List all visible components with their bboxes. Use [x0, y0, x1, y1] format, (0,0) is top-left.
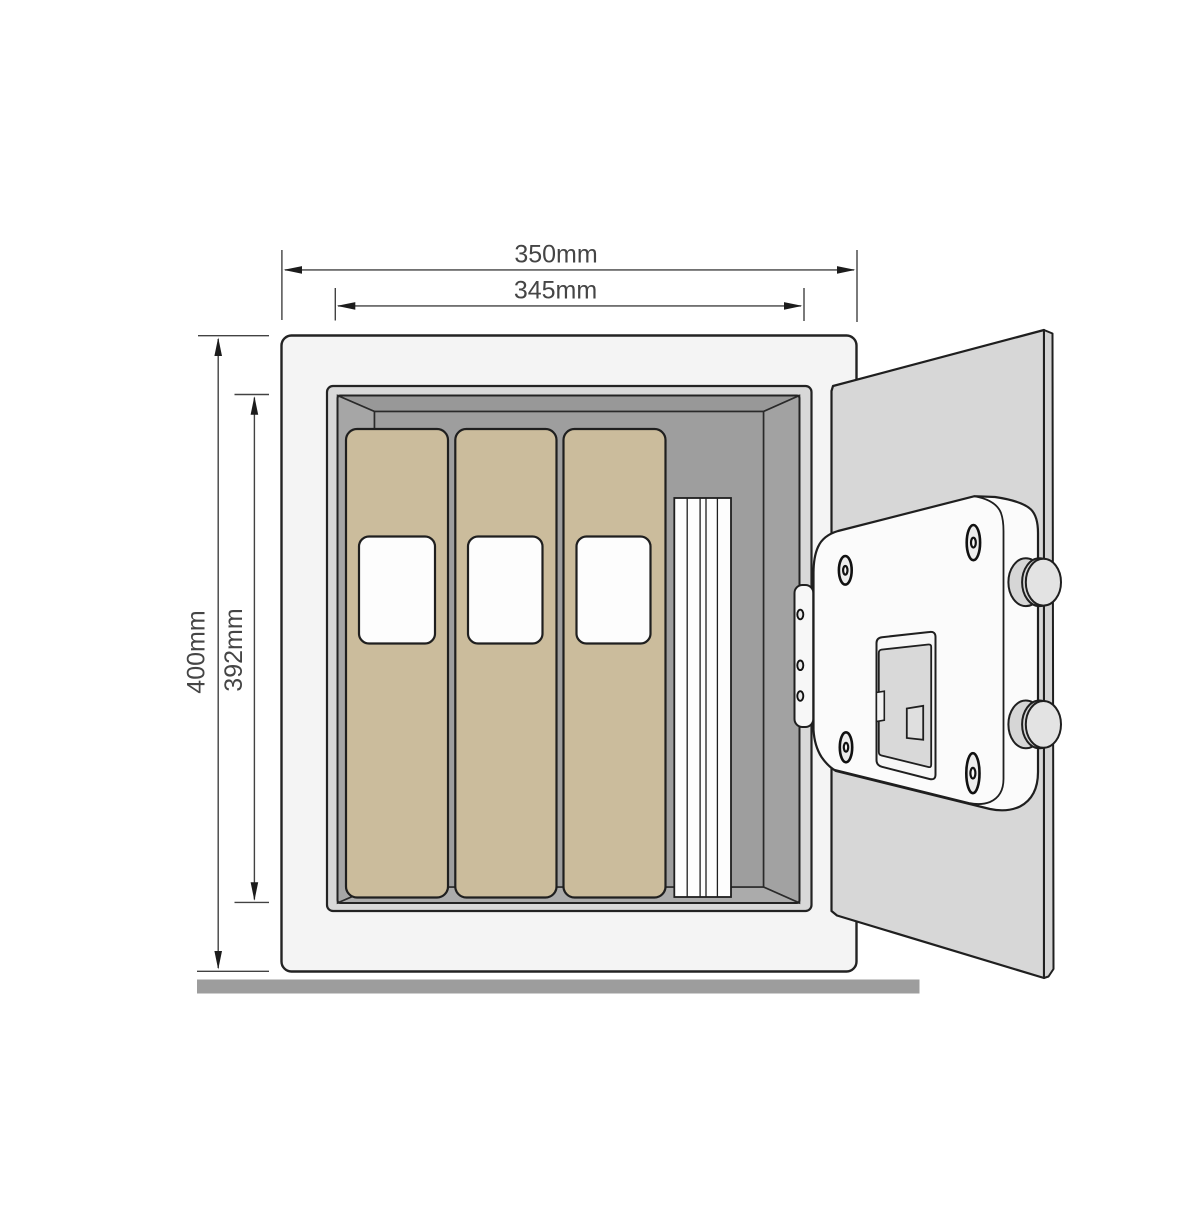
svg-text:400mm: 400mm: [183, 610, 211, 693]
svg-text:345mm: 345mm: [514, 276, 597, 304]
svg-text:392mm: 392mm: [220, 608, 248, 691]
svg-text:350mm: 350mm: [514, 241, 597, 269]
